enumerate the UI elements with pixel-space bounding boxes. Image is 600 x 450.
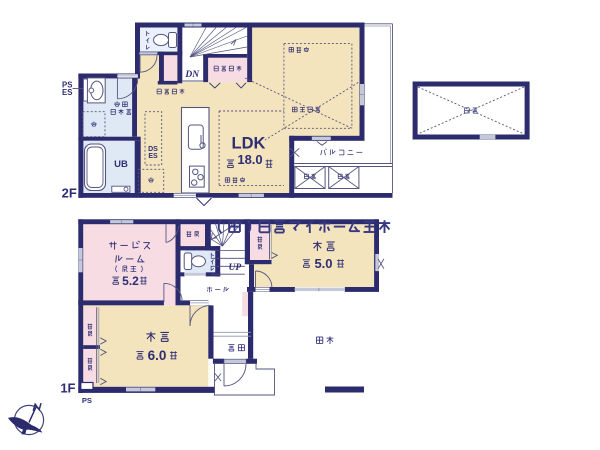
- svg-text:DN: DN: [184, 70, 200, 80]
- svg-text:UB: UB: [114, 159, 128, 170]
- svg-text:DS: DS: [148, 146, 158, 153]
- svg-text:5.2: 5.2: [122, 274, 139, 288]
- svg-text:PS: PS: [82, 396, 92, 405]
- svg-text:5.0: 5.0: [314, 256, 332, 271]
- svg-text:LDK: LDK: [232, 135, 266, 153]
- svg-text:2F: 2F: [62, 186, 77, 201]
- svg-text:6.0: 6.0: [148, 348, 167, 363]
- svg-text:UP: UP: [228, 263, 241, 273]
- svg-text:ES: ES: [148, 153, 158, 160]
- svg-text:1F: 1F: [60, 381, 75, 396]
- svg-text:18.0: 18.0: [237, 152, 262, 167]
- svg-text:ES: ES: [62, 88, 72, 97]
